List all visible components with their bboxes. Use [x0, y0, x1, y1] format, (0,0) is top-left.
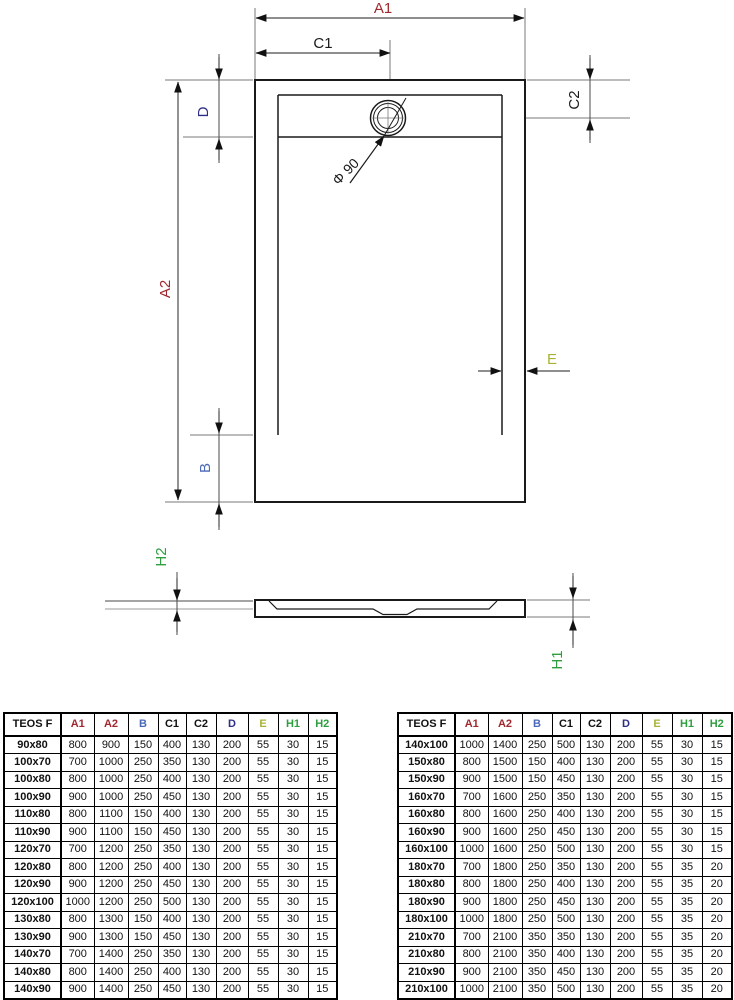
table-row: 140x707001400250350130200553015	[4, 946, 337, 964]
value-cell: 1200	[94, 876, 128, 894]
table-row: 150x909001500150450130200553015	[398, 771, 732, 789]
dimension-h2: H2	[153, 547, 177, 635]
left-dimensions-table: TEOS FA1A2BC1C2DEH1H290x8080090015040013…	[3, 712, 338, 1000]
value-cell: 900	[61, 981, 94, 999]
table-row: 160x909001600250450130200553015	[398, 824, 732, 842]
value-cell: 400	[552, 876, 580, 894]
value-cell: 350	[158, 754, 186, 772]
value-cell: 800	[61, 964, 94, 982]
size-cell: 120x70	[4, 841, 61, 859]
value-cell: 130	[580, 946, 610, 964]
value-cell: 200	[216, 806, 248, 824]
dim-label-c1: C1	[313, 35, 332, 52]
value-cell: 15	[702, 771, 732, 789]
value-cell: 130	[580, 876, 610, 894]
size-cell: 150x80	[398, 754, 455, 772]
size-cell: 210x100	[398, 981, 455, 999]
value-cell: 30	[672, 824, 702, 842]
technical-drawing: Φ 90 A1 C1 C2 D	[0, 0, 734, 705]
value-cell: 15	[702, 789, 732, 807]
value-cell: 15	[308, 736, 337, 754]
table-row: 180x707001800250350130200553520	[398, 859, 732, 877]
value-cell: 55	[248, 806, 278, 824]
value-cell: 55	[248, 946, 278, 964]
value-cell: 30	[278, 841, 308, 859]
value-cell: 250	[522, 824, 552, 842]
table-row: 90x80800900150400130200553015	[4, 736, 337, 754]
value-cell: 200	[610, 911, 642, 929]
value-cell: 15	[702, 841, 732, 859]
value-cell: 15	[308, 841, 337, 859]
table-row: 180x909001800250450130200553520	[398, 894, 732, 912]
value-cell: 1000	[94, 771, 128, 789]
value-cell: 1600	[488, 806, 522, 824]
value-cell: 800	[455, 754, 488, 772]
value-cell: 55	[248, 894, 278, 912]
value-cell: 130	[186, 946, 216, 964]
value-cell: 130	[580, 981, 610, 999]
value-cell: 15	[308, 789, 337, 807]
dim-label-e: E	[547, 351, 557, 368]
value-cell: 1000	[455, 911, 488, 929]
value-cell: 200	[216, 736, 248, 754]
value-cell: 55	[248, 736, 278, 754]
value-cell: 130	[186, 929, 216, 947]
value-cell: 1000	[94, 754, 128, 772]
value-cell: 700	[61, 841, 94, 859]
value-cell: 200	[610, 859, 642, 877]
value-cell: 900	[61, 929, 94, 947]
table-row: 110x909001100150450130200553015	[4, 824, 337, 842]
value-cell: 250	[128, 754, 158, 772]
value-cell: 20	[702, 981, 732, 999]
col-header-d: D	[610, 713, 642, 736]
value-cell: 20	[702, 964, 732, 982]
size-cell: 130x80	[4, 911, 61, 929]
value-cell: 1400	[94, 946, 128, 964]
value-cell: 350	[522, 981, 552, 999]
value-cell: 200	[610, 771, 642, 789]
col-header-c1: C1	[158, 713, 186, 736]
value-cell: 30	[278, 929, 308, 947]
table-row: 120x909001200250450130200553015	[4, 876, 337, 894]
value-cell: 1200	[94, 859, 128, 877]
col-header-a1: A1	[455, 713, 488, 736]
value-cell: 500	[552, 736, 580, 754]
dimension-h1: H1	[549, 573, 573, 670]
value-cell: 200	[610, 824, 642, 842]
value-cell: 15	[308, 754, 337, 772]
dim-label-h2: H2	[153, 547, 170, 566]
value-cell: 900	[94, 736, 128, 754]
value-cell: 130	[186, 859, 216, 877]
value-cell: 200	[610, 981, 642, 999]
value-cell: 130	[580, 911, 610, 929]
value-cell: 250	[522, 859, 552, 877]
size-cell: 150x90	[398, 771, 455, 789]
col-header-b: B	[522, 713, 552, 736]
col-header-b: B	[128, 713, 158, 736]
size-cell: 180x100	[398, 911, 455, 929]
value-cell: 200	[610, 946, 642, 964]
value-cell: 250	[522, 841, 552, 859]
value-cell: 900	[61, 824, 94, 842]
value-cell: 130	[580, 841, 610, 859]
value-cell: 250	[522, 789, 552, 807]
table-row: 120x707001200250350130200553015	[4, 841, 337, 859]
size-cell: 210x90	[398, 964, 455, 982]
col-header-d: D	[216, 713, 248, 736]
size-cell: 100x80	[4, 771, 61, 789]
value-cell: 55	[642, 754, 672, 772]
value-cell: 15	[308, 911, 337, 929]
value-cell: 200	[216, 964, 248, 982]
table-row: 140x909001400250450130200553015	[4, 981, 337, 999]
dimension-d: D	[195, 54, 219, 163]
value-cell: 200	[216, 771, 248, 789]
value-cell: 55	[248, 771, 278, 789]
value-cell: 450	[158, 876, 186, 894]
table-row: 210x808002100350400130200553520	[398, 946, 732, 964]
value-cell: 200	[216, 824, 248, 842]
value-cell: 250	[128, 876, 158, 894]
table-row: 160x808001600250400130200553015	[398, 806, 732, 824]
value-cell: 200	[216, 876, 248, 894]
table-row: 180x808001800250400130200553520	[398, 876, 732, 894]
value-cell: 30	[278, 876, 308, 894]
value-cell: 900	[455, 894, 488, 912]
value-cell: 700	[455, 929, 488, 947]
size-cell: 160x80	[398, 806, 455, 824]
page: Φ 90 A1 C1 C2 D	[0, 0, 734, 1000]
value-cell: 2100	[488, 929, 522, 947]
value-cell: 250	[128, 964, 158, 982]
value-cell: 900	[455, 824, 488, 842]
value-cell: 400	[158, 771, 186, 789]
value-cell: 400	[552, 806, 580, 824]
col-header-a2: A2	[94, 713, 128, 736]
table-row: 150x808001500150400130200553015	[398, 754, 732, 772]
value-cell: 1600	[488, 841, 522, 859]
value-cell: 900	[455, 771, 488, 789]
value-cell: 30	[278, 911, 308, 929]
value-cell: 700	[455, 789, 488, 807]
value-cell: 800	[61, 771, 94, 789]
value-cell: 35	[672, 876, 702, 894]
value-cell: 130	[580, 894, 610, 912]
value-cell: 20	[702, 859, 732, 877]
col-header-h1: H1	[672, 713, 702, 736]
value-cell: 2100	[488, 946, 522, 964]
value-cell: 35	[672, 929, 702, 947]
table-row: 140x808001400250400130200553015	[4, 964, 337, 982]
dimension-c1: C1	[256, 35, 390, 53]
col-header-c2: C2	[186, 713, 216, 736]
col-header-e: E	[642, 713, 672, 736]
col-header-h1: H1	[278, 713, 308, 736]
value-cell: 30	[278, 894, 308, 912]
value-cell: 30	[672, 754, 702, 772]
value-cell: 55	[248, 789, 278, 807]
value-cell: 55	[642, 841, 672, 859]
value-cell: 55	[642, 736, 672, 754]
size-cell: 140x80	[4, 964, 61, 982]
dim-label-a1: A1	[374, 0, 392, 17]
value-cell: 30	[672, 736, 702, 754]
value-cell: 20	[702, 911, 732, 929]
col-header-h2: H2	[308, 713, 337, 736]
value-cell: 55	[642, 876, 672, 894]
table-row: 160x10010001600250500130200553015	[398, 841, 732, 859]
value-cell: 250	[522, 806, 552, 824]
value-cell: 250	[522, 876, 552, 894]
value-cell: 15	[702, 736, 732, 754]
value-cell: 1800	[488, 894, 522, 912]
value-cell: 1000	[455, 841, 488, 859]
value-cell: 55	[642, 894, 672, 912]
table-row: 130x808001300150400130200553015	[4, 911, 337, 929]
value-cell: 15	[308, 806, 337, 824]
value-cell: 1200	[94, 841, 128, 859]
value-cell: 130	[580, 736, 610, 754]
value-cell: 1000	[455, 981, 488, 999]
value-cell: 200	[216, 929, 248, 947]
right-dimensions-table: TEOS FA1A2BC1C2DEH1H2140x100100014002505…	[397, 712, 733, 1000]
value-cell: 1600	[488, 824, 522, 842]
value-cell: 700	[455, 859, 488, 877]
value-cell: 150	[128, 911, 158, 929]
value-cell: 250	[128, 981, 158, 999]
value-cell: 450	[552, 894, 580, 912]
value-cell: 200	[610, 806, 642, 824]
value-cell: 55	[248, 841, 278, 859]
value-cell: 500	[158, 894, 186, 912]
value-cell: 30	[278, 981, 308, 999]
value-cell: 150	[522, 754, 552, 772]
value-cell: 55	[642, 806, 672, 824]
value-cell: 130	[580, 771, 610, 789]
value-cell: 30	[672, 789, 702, 807]
table-header-row: TEOS FA1A2BC1C2DEH1H2	[398, 713, 732, 736]
value-cell: 55	[642, 929, 672, 947]
value-cell: 200	[216, 894, 248, 912]
value-cell: 35	[672, 981, 702, 999]
value-cell: 500	[552, 981, 580, 999]
value-cell: 1000	[61, 894, 94, 912]
value-cell: 130	[186, 806, 216, 824]
value-cell: 800	[455, 806, 488, 824]
value-cell: 130	[580, 964, 610, 982]
value-cell: 900	[61, 789, 94, 807]
value-cell: 200	[610, 841, 642, 859]
value-cell: 400	[158, 736, 186, 754]
value-cell: 15	[308, 981, 337, 999]
value-cell: 35	[672, 894, 702, 912]
value-cell: 15	[308, 964, 337, 982]
value-cell: 200	[216, 911, 248, 929]
value-cell: 130	[580, 929, 610, 947]
value-cell: 150	[128, 806, 158, 824]
value-cell: 450	[158, 789, 186, 807]
side-view-drawing: H2 H1	[105, 547, 590, 669]
value-cell: 450	[552, 771, 580, 789]
dim-label-a2: A2	[157, 280, 174, 298]
value-cell: 450	[158, 929, 186, 947]
value-cell: 55	[248, 876, 278, 894]
value-cell: 30	[278, 859, 308, 877]
size-cell: 160x90	[398, 824, 455, 842]
value-cell: 350	[552, 789, 580, 807]
value-cell: 30	[278, 771, 308, 789]
value-cell: 800	[61, 859, 94, 877]
size-cell: 140x70	[4, 946, 61, 964]
value-cell: 55	[248, 929, 278, 947]
value-cell: 450	[158, 824, 186, 842]
value-cell: 200	[216, 789, 248, 807]
value-cell: 15	[308, 894, 337, 912]
value-cell: 1300	[94, 911, 128, 929]
size-cell: 120x80	[4, 859, 61, 877]
size-cell: 100x70	[4, 754, 61, 772]
value-cell: 1200	[94, 894, 128, 912]
value-cell: 450	[158, 981, 186, 999]
value-cell: 1100	[94, 824, 128, 842]
value-cell: 130	[580, 754, 610, 772]
dimension-b: B	[197, 408, 219, 530]
size-cell: 110x80	[4, 806, 61, 824]
value-cell: 200	[610, 894, 642, 912]
value-cell: 30	[672, 841, 702, 859]
dim-label-c2: C2	[566, 90, 583, 109]
value-cell: 150	[128, 736, 158, 754]
value-cell: 400	[158, 859, 186, 877]
value-cell: 250	[128, 771, 158, 789]
value-cell: 700	[61, 946, 94, 964]
value-cell: 20	[702, 946, 732, 964]
value-cell: 1400	[488, 736, 522, 754]
dim-label-d: D	[195, 106, 212, 117]
value-cell: 20	[702, 876, 732, 894]
size-cell: 180x90	[398, 894, 455, 912]
value-cell: 30	[278, 964, 308, 982]
value-cell: 55	[642, 859, 672, 877]
table-row: 180x10010001800250500130200553520	[398, 911, 732, 929]
value-cell: 15	[702, 754, 732, 772]
value-cell: 350	[522, 929, 552, 947]
value-cell: 150	[128, 824, 158, 842]
value-cell: 1000	[94, 789, 128, 807]
value-cell: 800	[61, 806, 94, 824]
value-cell: 250	[128, 859, 158, 877]
value-cell: 1800	[488, 859, 522, 877]
col-header-h2: H2	[702, 713, 732, 736]
value-cell: 30	[278, 806, 308, 824]
table-row: 100x808001000250400130200553015	[4, 771, 337, 789]
value-cell: 130	[186, 789, 216, 807]
value-cell: 55	[248, 824, 278, 842]
value-cell: 450	[552, 964, 580, 982]
value-cell: 15	[702, 824, 732, 842]
col-header-a2: A2	[488, 713, 522, 736]
value-cell: 200	[216, 754, 248, 772]
value-cell: 30	[278, 824, 308, 842]
value-cell: 350	[522, 964, 552, 982]
value-cell: 200	[610, 964, 642, 982]
value-cell: 15	[308, 876, 337, 894]
size-cell: 90x80	[4, 736, 61, 754]
value-cell: 15	[702, 806, 732, 824]
dimension-a1: A1	[256, 0, 524, 18]
dim-label-h1: H1	[549, 650, 566, 669]
col-header-teos-f: TEOS F	[4, 713, 61, 736]
value-cell: 15	[308, 824, 337, 842]
value-cell: 800	[61, 911, 94, 929]
value-cell: 1000	[455, 736, 488, 754]
value-cell: 130	[186, 981, 216, 999]
value-cell: 55	[642, 981, 672, 999]
value-cell: 130	[580, 806, 610, 824]
value-cell: 30	[278, 754, 308, 772]
table-row: 210x10010002100350500130200553520	[398, 981, 732, 999]
value-cell: 130	[580, 789, 610, 807]
value-cell: 700	[61, 754, 94, 772]
size-cell: 140x90	[4, 981, 61, 999]
value-cell: 35	[672, 946, 702, 964]
value-cell: 30	[278, 789, 308, 807]
value-cell: 250	[128, 841, 158, 859]
table-row: 100x707001000250350130200553015	[4, 754, 337, 772]
value-cell: 130	[186, 894, 216, 912]
size-cell: 210x80	[398, 946, 455, 964]
value-cell: 350	[158, 841, 186, 859]
value-cell: 250	[522, 894, 552, 912]
col-header-e: E	[248, 713, 278, 736]
value-cell: 1400	[94, 964, 128, 982]
dimension-c2: C2	[566, 55, 590, 143]
value-cell: 2100	[488, 964, 522, 982]
value-cell: 55	[642, 911, 672, 929]
value-cell: 20	[702, 929, 732, 947]
value-cell: 15	[308, 929, 337, 947]
value-cell: 130	[186, 824, 216, 842]
top-view-drawing: Φ 90 A1 C1 C2 D	[157, 0, 630, 530]
size-cell: 210x70	[398, 929, 455, 947]
value-cell: 35	[672, 911, 702, 929]
size-cell: 120x90	[4, 876, 61, 894]
value-cell: 130	[186, 736, 216, 754]
col-header-c2: C2	[580, 713, 610, 736]
value-cell: 150	[522, 771, 552, 789]
size-cell: 130x90	[4, 929, 61, 947]
size-cell: 140x100	[398, 736, 455, 754]
table-row: 130x909001300150450130200553015	[4, 929, 337, 947]
value-cell: 30	[672, 771, 702, 789]
value-cell: 130	[580, 859, 610, 877]
value-cell: 200	[610, 789, 642, 807]
value-cell: 15	[308, 771, 337, 789]
value-cell: 55	[248, 964, 278, 982]
value-cell: 400	[552, 946, 580, 964]
value-cell: 200	[610, 754, 642, 772]
value-cell: 200	[216, 981, 248, 999]
value-cell: 30	[278, 736, 308, 754]
value-cell: 350	[552, 859, 580, 877]
value-cell: 500	[552, 911, 580, 929]
value-cell: 350	[552, 929, 580, 947]
value-cell: 200	[610, 736, 642, 754]
table-header-row: TEOS FA1A2BC1C2DEH1H2	[4, 713, 337, 736]
value-cell: 350	[158, 946, 186, 964]
